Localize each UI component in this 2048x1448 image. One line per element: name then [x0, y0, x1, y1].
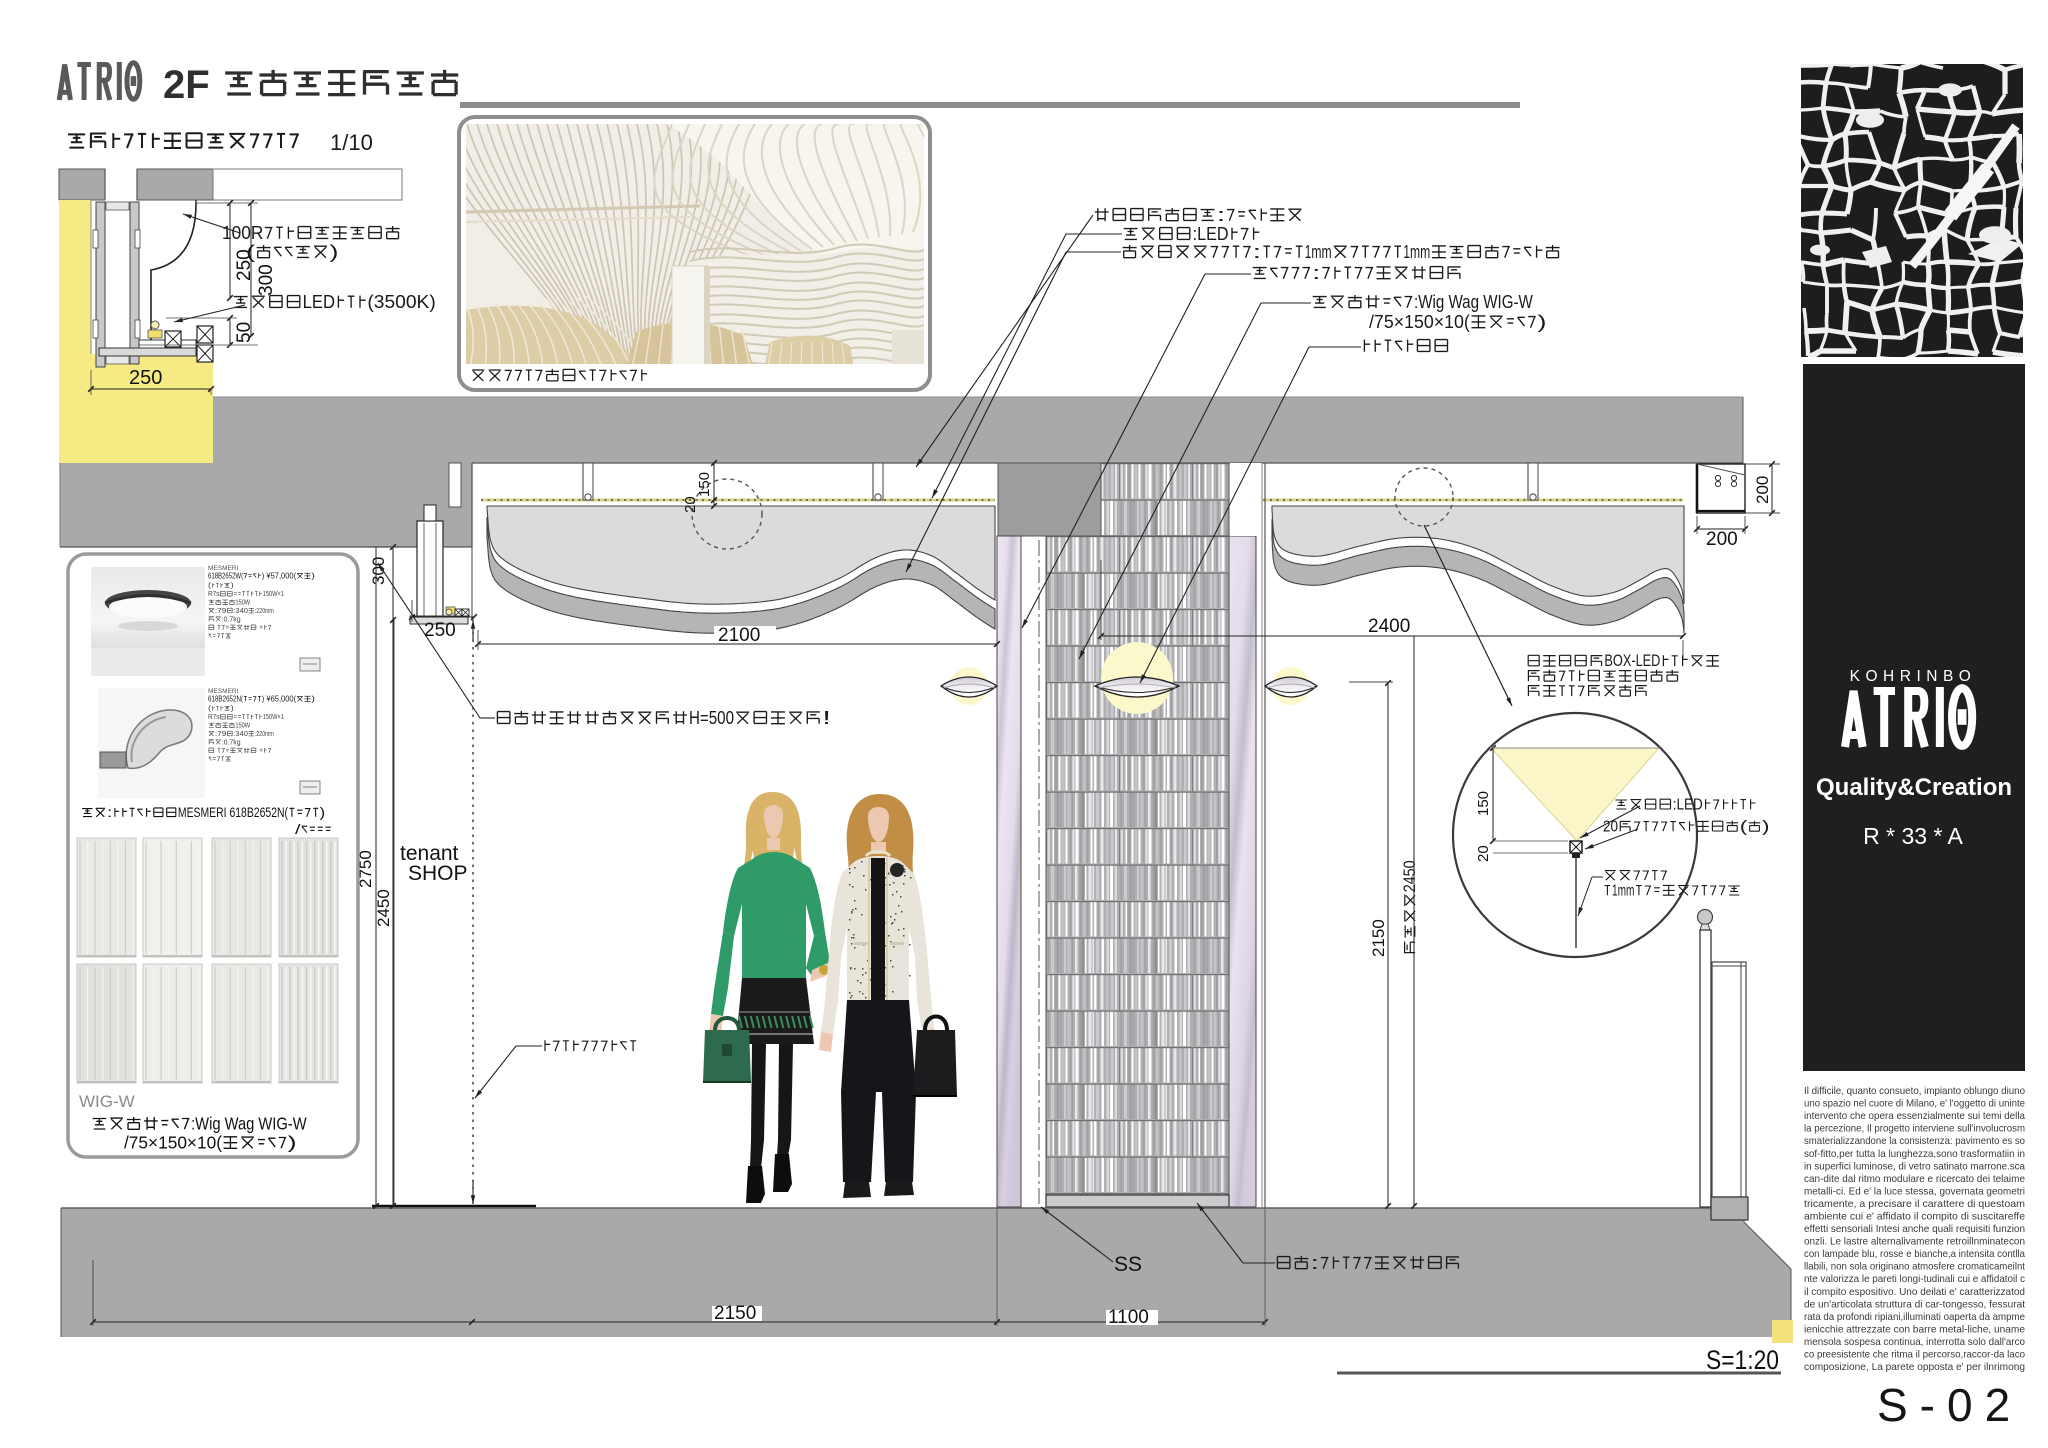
svg-text:20: 20	[1603, 818, 1618, 835]
svg-text:MESMERI 618B2652N(: MESMERI 618B2652N(	[178, 805, 288, 820]
svg-text:1mm: 1mm	[1403, 241, 1430, 262]
svg-text:ienicchie attrezzate con ba: ienicchie attrezzate con barre metal-lic…	[1804, 1325, 2025, 1336]
svg-text:la percezione, Il progetto int: la percezione, Il progetto interviene su…	[1804, 1124, 2025, 1135]
svg-text:): )	[288, 1132, 297, 1152]
svg-text:2150: 2150	[714, 1303, 756, 1324]
svg-text:/: /	[295, 822, 301, 837]
svg-text:): )	[231, 582, 234, 590]
svg-text:R7s: R7s	[208, 590, 220, 598]
svg-text:): )	[231, 705, 234, 713]
svg-text:composizione, La parete oppo: composizione, La parete opposta e' per i…	[1804, 1362, 2025, 1373]
svg-text:150W: 150W	[235, 722, 250, 730]
svg-text:intervento che opera essenzia: intervento che opera essenzialmente sui …	[1804, 1111, 2025, 1122]
svg-text:1mm: 1mm	[1305, 241, 1332, 262]
svg-text::Wig Wag WIG-W: :Wig Wag WIG-W	[191, 1113, 307, 1133]
svg-text:50: 50	[234, 322, 255, 343]
svg-text:): )	[320, 805, 326, 820]
svg-text:/75×150×10(: /75×150×10(	[124, 1132, 222, 1152]
svg-text::79: :79	[215, 730, 227, 738]
svg-text:in superfici luminose, di vetr: in superfici luminose, di vetro satinato…	[1804, 1161, 2025, 1172]
svg-text:mensola sospesa continua, inte: mensola sospesa continua, interrotta sol…	[1804, 1337, 2025, 1348]
svg-text:il compito espositivo. Uno dei: il compito espositivo. Uno deilati e' ca…	[1804, 1287, 2025, 1298]
svg-text:WIG-W: WIG-W	[79, 1092, 135, 1111]
svg-text:1/10: 1/10	[330, 130, 373, 155]
svg-text:2450: 2450	[374, 889, 393, 927]
svg-text::340: :340	[233, 730, 248, 738]
svg-text:BOX-LED: BOX-LED	[1604, 652, 1660, 670]
svg-text:250: 250	[424, 620, 456, 641]
svg-text:de un'articolata struttura di: de un'articolata struttura di car-tonges…	[1804, 1299, 2025, 1310]
svg-text:LED: LED	[303, 291, 335, 312]
svg-text:250: 250	[129, 367, 162, 389]
svg-text:) ¥65,000(: ) ¥65,000(	[262, 694, 297, 703]
svg-text:tricamente, a precisare il: tricamente, a precisare il carattere di …	[1804, 1199, 2025, 1210]
svg-text:rata da profondi ripiani,illum: rata da profondi ripiani,illuminati oape…	[1804, 1312, 2025, 1323]
svg-text::: :	[1310, 1252, 1319, 1273]
svg-text:100R: 100R	[222, 222, 263, 243]
svg-text::340: :340	[233, 607, 248, 615]
svg-text::: :	[1252, 241, 1261, 262]
svg-text:effetti sensoriali Intesi an: effetti sensoriali Intesi anche quali re…	[1804, 1224, 2025, 1235]
svg-text::: :	[1312, 262, 1321, 283]
svg-text:S-02: S-02	[1877, 1379, 2022, 1431]
svg-text::: :	[1217, 204, 1226, 225]
svg-text:Quality&Creation: Quality&Creation	[1816, 774, 2012, 801]
svg-text:): )	[1538, 311, 1547, 332]
svg-text:R7s: R7s	[208, 713, 220, 721]
svg-text::Wig Wag WIG-W: :Wig Wag WIG-W	[1414, 291, 1533, 312]
svg-text:2100: 2100	[718, 625, 760, 646]
svg-text:H=500: H=500	[689, 707, 734, 728]
svg-text:2450: 2450	[1401, 860, 1419, 892]
svg-text:1mm: 1mm	[1612, 882, 1635, 899]
svg-text:300: 300	[256, 264, 277, 296]
svg-text:S=1:20: S=1:20	[1706, 1345, 1779, 1375]
svg-text::220mm: :220mm	[255, 607, 274, 615]
svg-text:(3500K): (3500K)	[367, 291, 435, 312]
svg-text:150W×1: 150W×1	[263, 713, 284, 721]
svg-text:R * 33 * A: R * 33 * A	[1863, 823, 1963, 849]
svg-text:Il difficile, quanto consueto,: Il difficile, quanto consueto, impianto …	[1804, 1086, 2025, 1097]
svg-text:) ¥57,000(: ) ¥57,000(	[262, 571, 297, 580]
svg-text:!: !	[822, 707, 831, 728]
svg-text:ambiente cui e' affidato il: ambiente cui e' affidato il compito di s…	[1804, 1212, 2025, 1223]
svg-text:2F: 2F	[163, 63, 210, 107]
svg-text:150W×1: 150W×1	[263, 590, 284, 598]
svg-text:SS: SS	[1114, 1253, 1142, 1276]
svg-text:2150: 2150	[1369, 919, 1388, 957]
svg-text:200: 200	[1706, 529, 1738, 550]
svg-text:/75×150×10(: /75×150×10(	[1369, 311, 1471, 332]
svg-text:): )	[311, 571, 315, 580]
svg-text:(: (	[246, 241, 256, 262]
svg-text::LED: :LED	[1673, 796, 1703, 813]
svg-text:SHOP: SHOP	[408, 862, 468, 885]
svg-text:618B2652N(: 618B2652N(	[208, 694, 243, 703]
svg-text:150W: 150W	[235, 599, 250, 607]
svg-text:con lampade blu, rosse e bianc: con lampade blu, rosse e bianche,a inten…	[1804, 1249, 2025, 1260]
svg-text:200: 200	[1753, 476, 1772, 504]
svg-text:nte valorizza le pareti longi-: nte valorizza le pareti longi-tudinali c…	[1804, 1274, 2025, 1285]
svg-text:metalli-ci. Ed e' la luce ste: metalli-ci. Ed e' la luce stessa, govern…	[1804, 1186, 2025, 1197]
svg-text:): )	[311, 694, 315, 703]
svg-text::: :	[107, 805, 113, 820]
svg-text::0.7kg: :0.7kg	[222, 738, 241, 746]
svg-text:2400: 2400	[1368, 616, 1410, 637]
svg-text::220mm: :220mm	[255, 730, 274, 738]
svg-text::79: :79	[215, 607, 227, 615]
svg-text:20: 20	[682, 496, 699, 513]
svg-text:1100: 1100	[1108, 1307, 1149, 1328]
svg-text:): )	[330, 241, 339, 262]
svg-text:KOHRINBO: KOHRINBO	[1850, 668, 1977, 685]
svg-text::0.7kg: :0.7kg	[222, 615, 241, 623]
svg-text:smaterializzandone la consist: smaterializzandone la consistenza: pavim…	[1804, 1136, 2025, 1147]
svg-text:20: 20	[1475, 845, 1492, 862]
svg-text::LED: :LED	[1193, 223, 1229, 244]
svg-text:150: 150	[696, 472, 713, 497]
svg-text:onzli. Le lastre alternalivam: onzli. Le lastre alternalivamente retroi…	[1804, 1237, 2025, 1248]
svg-text:uno spazio nel cuore di Milano: uno spazio nel cuore di Milano, e' l'ogg…	[1804, 1099, 2025, 1110]
svg-text:sof-fitto,per tutta la lunghez: sof-fitto,per tutta la lunghezza,sono tr…	[1804, 1149, 2025, 1160]
svg-text:300: 300	[369, 557, 388, 585]
svg-text:): )	[1762, 818, 1770, 835]
svg-text:618B2652W(: 618B2652W(	[208, 571, 243, 580]
svg-text:co preesistente che ritma il p: co preesistente che ritma il percorso,ra…	[1804, 1350, 2025, 1361]
svg-text:150: 150	[1475, 791, 1492, 816]
svg-text:llabili, non sola originano at: llabili, non sola originano atmosfere cr…	[1804, 1262, 2025, 1273]
svg-text:(: (	[1740, 818, 1748, 835]
svg-text:can-dite dal ritmo modulare: can-dite dal ritmo modulare e ricercato …	[1804, 1174, 2025, 1185]
